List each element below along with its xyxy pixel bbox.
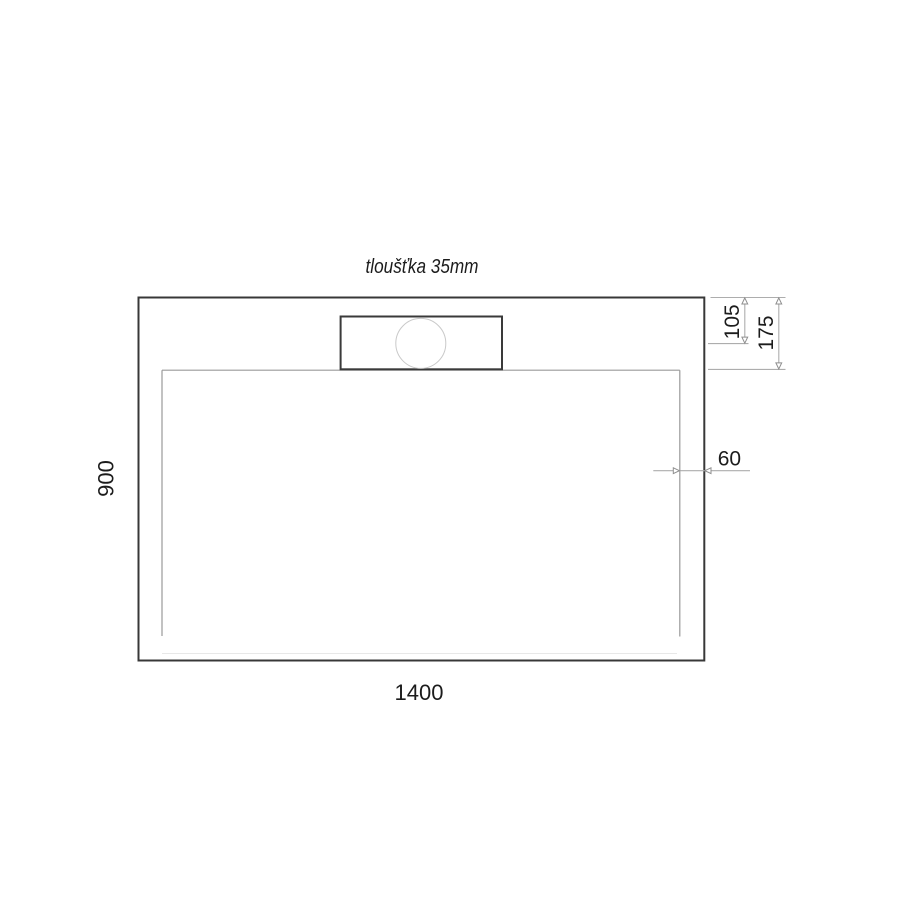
svg-text:900: 900 [94,460,119,497]
svg-text:60: 60 [718,448,741,471]
svg-text:1400: 1400 [395,680,444,705]
svg-text:175: 175 [755,315,778,350]
svg-text:tloušťka 35mm: tloušťka 35mm [366,256,479,278]
svg-text:105: 105 [721,304,744,339]
